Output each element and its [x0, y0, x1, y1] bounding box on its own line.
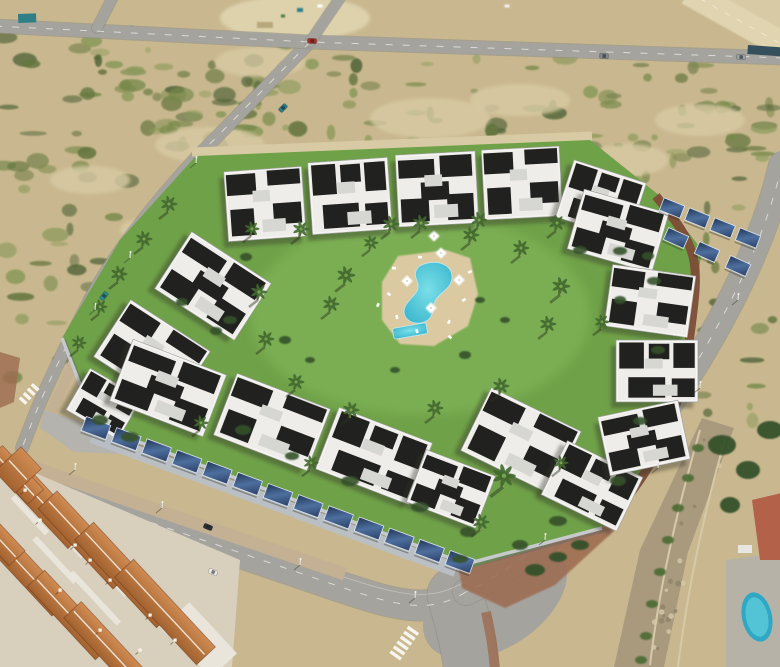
palm-crown [117, 272, 120, 275]
hedge-clump [635, 656, 647, 664]
scrub-patch [105, 61, 123, 69]
scrub-patch [747, 403, 753, 411]
roof-detail [434, 204, 459, 218]
scrub-patch [199, 91, 212, 98]
ditch-stone [652, 645, 657, 650]
sun-lounger [418, 256, 422, 259]
scrub-patch [351, 58, 363, 73]
apartment-block [390, 151, 479, 233]
scrub-patch [700, 88, 718, 94]
scrub-patch [143, 89, 153, 96]
ditch-stone [703, 438, 706, 441]
scrub-patch [7, 161, 29, 172]
scrub-patch [18, 185, 30, 194]
scrub-patch [288, 121, 307, 137]
palm-crown [294, 380, 297, 383]
shrub [512, 540, 528, 550]
scrub-patch [349, 73, 358, 85]
car-windshield [602, 54, 606, 58]
ditch-stone [703, 514, 706, 517]
scrub-patch [751, 323, 769, 334]
lamp-head [95, 303, 97, 305]
lamp-head [738, 293, 740, 295]
palm-crown [167, 202, 170, 205]
scrub-patch [704, 201, 710, 215]
shrub [475, 297, 485, 303]
scrub-patch [42, 228, 69, 242]
ditch-stone [666, 629, 671, 634]
shrub [176, 298, 188, 306]
chimney [39, 519, 42, 522]
scrub-patch [628, 134, 639, 142]
scrub-patch [95, 54, 102, 67]
hedge-clump [682, 474, 694, 482]
palm-crown [601, 320, 604, 323]
apartment-block [219, 166, 307, 248]
palm-crown [433, 406, 436, 409]
scrub-patch [651, 134, 658, 140]
roof-detail [337, 181, 355, 194]
ditch-stone [679, 521, 683, 525]
tree [708, 435, 736, 455]
shrub [240, 253, 252, 261]
scrub-patch [305, 59, 319, 70]
palm-crown [349, 408, 352, 411]
scrub-patch [687, 146, 711, 158]
palm-crown [519, 246, 522, 249]
hedge-clump [672, 504, 684, 512]
scrub-patch [332, 55, 356, 61]
scrub-patch [177, 71, 190, 78]
chimney [99, 629, 102, 632]
tree [736, 461, 760, 479]
palm-crown [546, 322, 549, 325]
lamp-head [545, 533, 547, 535]
shrub [459, 351, 471, 359]
scrub-patch [152, 93, 162, 102]
palm-crown [469, 233, 472, 236]
palm-crown [251, 227, 254, 230]
parasol-pole [458, 279, 460, 281]
lamp-head [130, 251, 132, 253]
palm-crown [499, 384, 502, 387]
shrub [633, 417, 647, 425]
ditch-stone [719, 455, 722, 458]
scrub-patch [23, 59, 41, 68]
ditch-stone [660, 604, 665, 609]
parasol-pole [440, 252, 442, 254]
scrub-patch [70, 254, 80, 268]
apartment-block [476, 146, 563, 226]
shrub [613, 247, 627, 255]
palm-crown [78, 341, 81, 344]
scrub-patch [756, 104, 780, 111]
hedge-clump [654, 568, 666, 576]
apartment-block [303, 157, 393, 241]
tree [549, 552, 567, 562]
tree [571, 540, 589, 550]
shrub [411, 502, 429, 512]
scrub-patch [46, 321, 66, 326]
chimney [74, 544, 77, 547]
construction-equipment [505, 5, 510, 8]
palm-crown [370, 241, 373, 244]
aerial-photo [0, 0, 780, 667]
tree [720, 497, 740, 513]
palm-crown [99, 305, 102, 308]
shipping-container [18, 13, 36, 23]
scrub-patch [405, 82, 426, 86]
scrub-patch [168, 87, 194, 102]
scrub-patch [154, 63, 173, 70]
scrub-patch [105, 213, 123, 221]
scrub-patch [747, 413, 759, 428]
scrub-patch [675, 73, 688, 83]
shrub [651, 346, 665, 354]
hedge-clump [646, 600, 658, 608]
ditch-stone [656, 647, 659, 650]
shrub [285, 452, 299, 460]
apartment-block [598, 264, 696, 344]
ditch-stone [668, 613, 674, 619]
scrub-patch [327, 125, 336, 140]
shrub [647, 277, 661, 285]
scrub-patch [472, 54, 480, 64]
scrub-patch [278, 80, 301, 94]
ditch-stone [693, 505, 697, 509]
scrub-patch [208, 60, 216, 69]
scrub-patch [583, 86, 598, 98]
scrub-patch [282, 125, 289, 131]
scrub-patch [726, 134, 736, 140]
scrub-patch [600, 100, 622, 108]
scrub-patch [62, 95, 82, 103]
scrub-patch [78, 147, 97, 159]
construction-equipment [257, 22, 273, 28]
roof-terrace-dark [483, 152, 514, 175]
scrub-patch [751, 123, 777, 134]
sun-lounger [392, 267, 396, 270]
hedge-clump [640, 632, 652, 640]
roof-terrace-dark [439, 154, 472, 177]
palm-crown [299, 227, 302, 230]
ditch-stone [717, 463, 722, 468]
roof-detail [252, 190, 270, 202]
shrub [279, 336, 291, 344]
roof-terrace-dark [340, 164, 361, 183]
scrub-patch [525, 66, 539, 71]
car [599, 53, 608, 59]
scrub-patch [205, 69, 224, 83]
roof-terrace-dark [619, 342, 644, 368]
scrub-patch [633, 63, 650, 67]
shrub [121, 432, 139, 442]
scrub-patch [747, 384, 766, 389]
scrub-patch [80, 87, 95, 100]
ditch-stone [675, 581, 681, 587]
scrub-patch [184, 110, 204, 121]
scrub-patch [62, 204, 77, 217]
chimney [89, 559, 92, 562]
scrub-patch [755, 155, 769, 162]
chimney [149, 614, 152, 617]
roof-terrace-dark [524, 148, 558, 165]
lamp-head [196, 156, 198, 158]
scrub-patch [688, 63, 714, 68]
scrub-patch [122, 91, 134, 101]
shrub [235, 425, 251, 435]
roof-detail [645, 359, 663, 369]
scrub-patch [29, 261, 51, 266]
car-windshield [739, 55, 743, 59]
hedge-clump [692, 444, 704, 452]
shrub [390, 367, 400, 373]
shrub [341, 476, 359, 486]
scrub-patch [421, 62, 434, 66]
scrub-patch [732, 176, 748, 181]
palm-crown [310, 461, 313, 464]
scrub-patch [50, 242, 68, 247]
ditch-stone [652, 619, 658, 625]
scrub-patch [732, 204, 746, 210]
palm-crown [559, 284, 563, 288]
scrub-patch [72, 131, 82, 137]
tree [525, 564, 545, 576]
scrub-patch [343, 100, 356, 108]
lamp-head [162, 501, 164, 503]
road-bottom-exit [455, 595, 472, 667]
scrub-patch [145, 47, 151, 53]
scrub-patch [212, 99, 238, 106]
scrub-patch [262, 112, 275, 126]
scrub-patch [703, 408, 712, 417]
ditch-stone [659, 618, 665, 624]
palm-crown [200, 421, 203, 424]
chimney [24, 489, 27, 492]
scrub-patch [361, 81, 381, 90]
scrub-patch [98, 69, 107, 75]
ditch-stone [665, 589, 668, 592]
shrub [92, 415, 108, 425]
construction-equipment [297, 8, 303, 12]
shrub [210, 327, 222, 335]
construction-equipment [318, 5, 323, 8]
scrub-patch [126, 66, 144, 74]
ditch-stone [681, 581, 686, 586]
neighbour-structure [738, 545, 752, 553]
chimney [59, 589, 62, 592]
scrub-patch [241, 75, 253, 87]
roof-detail [424, 174, 442, 186]
parasol-pole [433, 235, 435, 237]
roof-detail [653, 385, 678, 396]
shrub [452, 555, 468, 563]
scrub-patch [38, 165, 56, 174]
lamp-head [658, 461, 660, 463]
car [307, 38, 316, 43]
chimney [174, 639, 177, 642]
shrub [573, 246, 587, 254]
lamp-head [415, 591, 417, 593]
scrub-patch [643, 74, 652, 82]
roof-terrace-dark [364, 161, 387, 191]
sand-patch [50, 166, 130, 194]
shrub [642, 252, 654, 260]
ditch-stone [668, 579, 673, 584]
roof-terrace-dark [225, 173, 256, 196]
roof-terrace-dark [487, 187, 512, 215]
scrub-patch [15, 314, 29, 325]
roof-detail [510, 169, 528, 181]
scrub-patch [7, 293, 34, 301]
construction-equipment [281, 15, 285, 18]
car-windshield [310, 39, 314, 43]
shrub [305, 357, 315, 363]
palm-crown [344, 273, 348, 277]
lamp-head [700, 381, 702, 383]
palm-crown [555, 221, 558, 224]
scrub-patch [19, 131, 47, 136]
hedge-clump [662, 536, 674, 544]
parasol-pole [406, 280, 408, 282]
roof-detail [519, 197, 543, 211]
roof-detail [347, 210, 372, 225]
palm-crown [560, 461, 563, 464]
shrub [610, 476, 626, 486]
palm-crown [257, 290, 260, 293]
scrub-patch [6, 269, 26, 284]
scrub-patch [216, 111, 227, 118]
palm-crown [389, 222, 392, 225]
sand-patch [655, 104, 745, 136]
palm-crown [502, 474, 506, 478]
scrub-patch [711, 261, 719, 273]
scrub-patch [666, 149, 687, 155]
palm-crown [264, 337, 267, 340]
scrub-patch [326, 71, 341, 76]
sand-patch [470, 84, 570, 116]
palm-crown [479, 520, 482, 523]
chimney [139, 649, 142, 652]
scrub-patch [44, 276, 58, 292]
lamp-head [75, 463, 77, 465]
scrub-patch [349, 88, 357, 98]
parasol-pole [430, 307, 432, 309]
shrub [549, 516, 567, 526]
palm-crown [419, 221, 422, 224]
palm-crown [142, 237, 145, 240]
roof-terrace-dark [267, 168, 301, 186]
ditch-stone [673, 609, 677, 613]
palm-crown [329, 302, 332, 305]
ditch-stone [677, 558, 682, 563]
chimney [109, 579, 112, 582]
scrub-patch [768, 316, 777, 323]
lamp-head [300, 558, 302, 560]
scrub-patch [670, 153, 677, 168]
ditch-stone [659, 609, 665, 615]
palm-crown [477, 218, 480, 221]
roof-terrace-dark [311, 164, 337, 196]
roof-detail [262, 218, 286, 232]
shrub [223, 316, 237, 324]
shrub [500, 317, 510, 323]
shrub [614, 296, 626, 304]
aerial-photo-svg [0, 0, 780, 667]
scrub-patch [740, 357, 765, 363]
roof-terrace-dark [673, 343, 694, 368]
car [736, 54, 745, 60]
